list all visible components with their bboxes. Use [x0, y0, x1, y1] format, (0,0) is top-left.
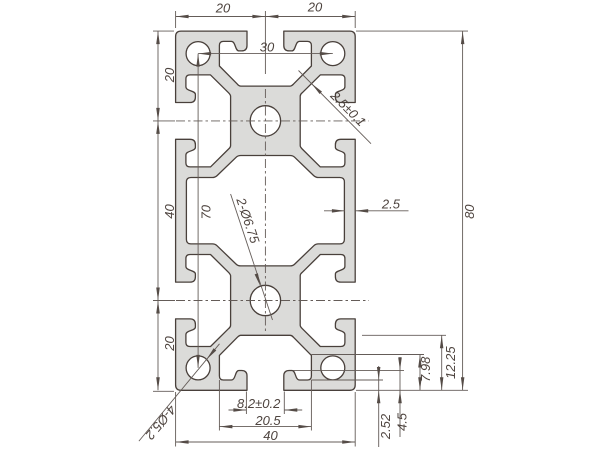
svg-text:40: 40 [263, 428, 278, 443]
svg-text:4.5: 4.5 [395, 412, 410, 431]
svg-text:2.52: 2.52 [378, 413, 393, 440]
svg-text:80: 80 [462, 204, 477, 219]
svg-text:20: 20 [307, 0, 323, 15]
svg-text:2-Ø6.75: 2-Ø6.75 [233, 195, 263, 246]
svg-text:20: 20 [162, 336, 177, 352]
svg-text:40: 40 [162, 204, 177, 219]
svg-text:20: 20 [215, 1, 231, 16]
svg-text:20.5: 20.5 [254, 413, 281, 428]
svg-text:70: 70 [199, 204, 214, 219]
svg-text:4-Ø5.2: 4-Ø5.2 [142, 402, 179, 443]
svg-text:8.2±0.2: 8.2±0.2 [237, 396, 281, 411]
svg-text:30: 30 [260, 40, 275, 55]
svg-text:7.98: 7.98 [418, 356, 433, 382]
svg-text:20: 20 [162, 67, 177, 83]
svg-text:12.25: 12.25 [443, 346, 458, 379]
svg-text:2.5: 2.5 [381, 197, 401, 212]
